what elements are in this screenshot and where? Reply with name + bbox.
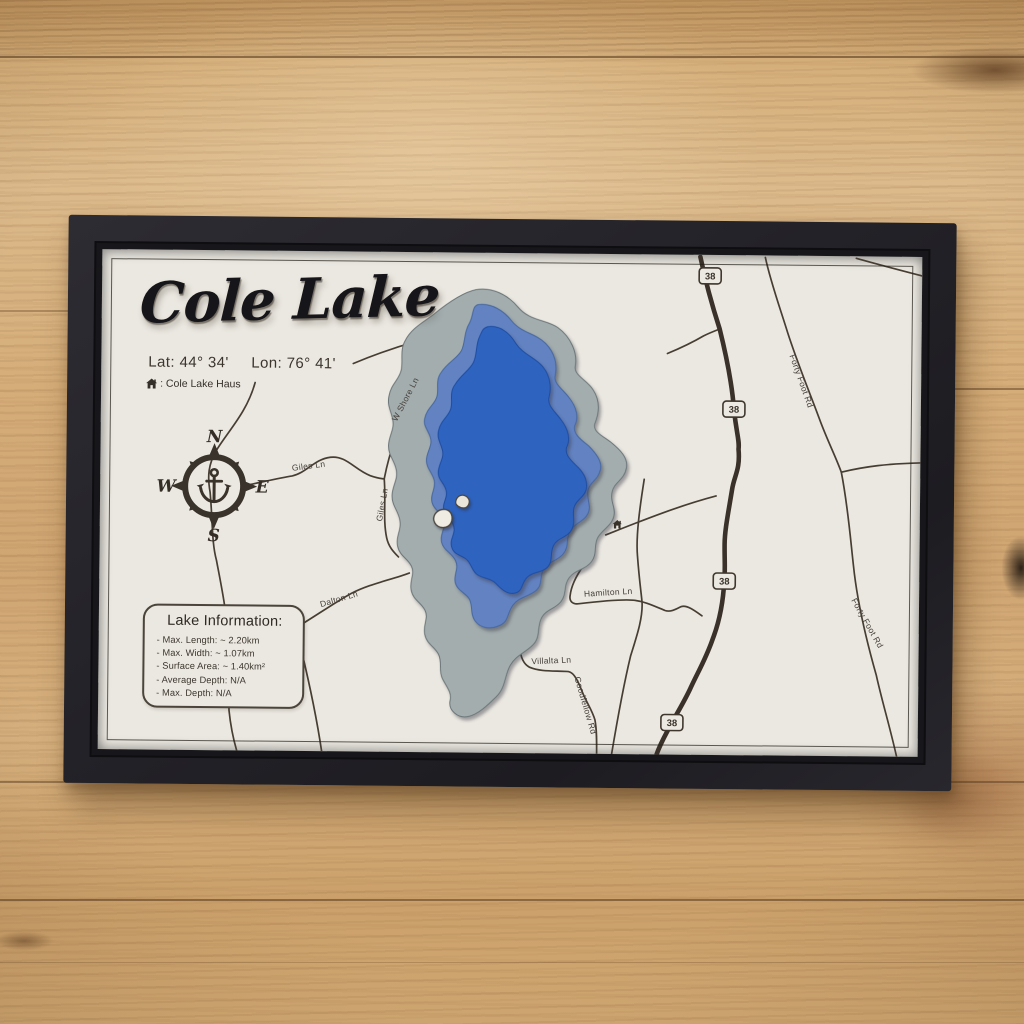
compass-west-label: W [156, 477, 177, 497]
plank-seam [0, 310, 70, 312]
route-38-shield: 38 [713, 573, 735, 589]
lake-info-average-depth: - Average Depth: N/A [156, 673, 292, 687]
lake-info-max-depth: - Max. Depth: N/A [156, 686, 292, 700]
road-label: Giles Ln [374, 487, 390, 522]
house-icon [146, 379, 157, 389]
road-label: Dalton Ln [319, 588, 359, 609]
road [667, 329, 719, 354]
route-number: 38 [705, 271, 716, 282]
road [841, 462, 920, 473]
route-38-shield: 38 [699, 268, 721, 284]
anchor-icon [197, 469, 232, 502]
road-label: Hamilton Ln [584, 586, 633, 599]
lake-info-max-length: - Max. Length: ~ 2.20km [157, 634, 293, 648]
lake-information-box: Lake Information: - Max. Length: ~ 2.20k… [142, 603, 305, 709]
road-label: Goodfellow Rd [572, 675, 598, 735]
route-number: 38 [719, 577, 730, 588]
route-number: 38 [667, 718, 678, 729]
road-label: Forty Foot Rd [788, 353, 816, 409]
wood-plank [0, 0, 1024, 56]
lake-info-max-width: - Max. Width: ~ 1.07km [156, 647, 292, 661]
legend-haus: : Cole Lake Haus [146, 378, 241, 391]
lake-layers [385, 288, 628, 718]
road [856, 258, 922, 276]
compass-east-label: E [255, 478, 270, 498]
compass-rose: N S W E [154, 426, 275, 547]
road [612, 479, 645, 754]
map-title: Cole Lake [139, 263, 441, 337]
compass-north-label: N [206, 427, 224, 447]
lake-information-heading: Lake Information: [157, 613, 293, 630]
legend-haus-label: : Cole Lake Haus [160, 378, 241, 391]
road-label: Giles Ln [291, 459, 326, 473]
latitude-label: Lat: 44° 34' [148, 354, 229, 372]
plank-seam [0, 56, 1024, 58]
plank-seam [0, 962, 1024, 963]
coordinates: Lat: 44° 34' Lon: 76° 41' [148, 354, 336, 373]
house-marker [613, 520, 622, 529]
plank-seam [0, 899, 1024, 901]
road-forty-foot [761, 257, 902, 756]
picture-frame: Giles Ln W Shore Ln Giles Ln Dalton Ln H… [63, 215, 956, 791]
lake-info-surface-area: - Surface Area: ~ 1.40km² [156, 660, 292, 674]
road-route-38 [657, 256, 741, 755]
road [606, 495, 716, 536]
compass-south-label: S [207, 526, 219, 546]
route-38-shield: 38 [723, 401, 745, 417]
route-38-shield: 38 [661, 714, 683, 730]
route-number: 38 [729, 405, 740, 416]
longitude-label: Lon: 76° 41' [251, 355, 336, 373]
island [434, 509, 452, 527]
map-board: Giles Ln W Shore Ln Giles Ln Dalton Ln H… [98, 249, 923, 757]
road-label: Villalta Ln [531, 655, 571, 667]
wood-plank-wall: Giles Ln W Shore Ln Giles Ln Dalton Ln H… [0, 0, 1024, 1024]
